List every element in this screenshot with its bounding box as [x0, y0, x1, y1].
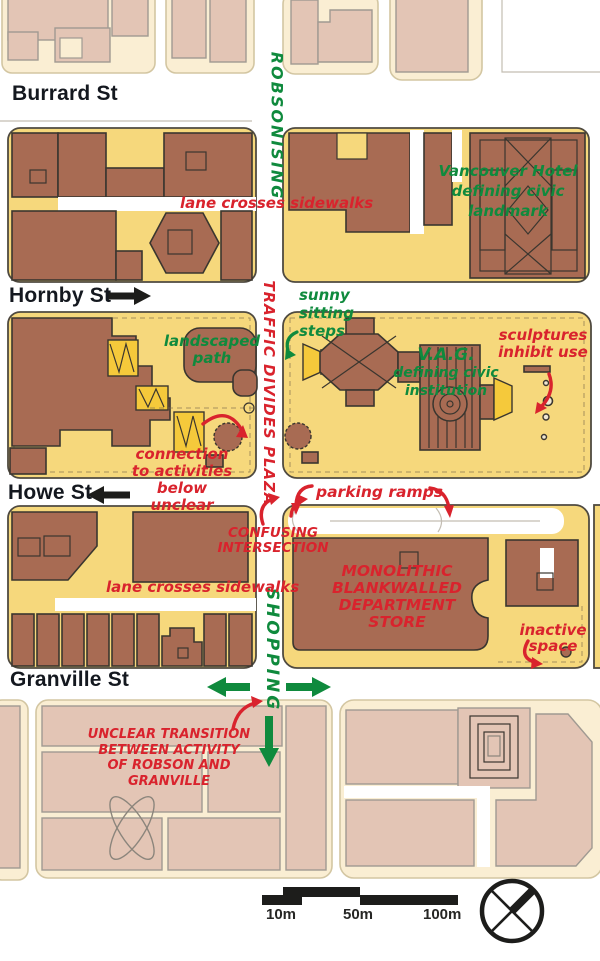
sculptures-line1: sculptures	[498, 327, 588, 344]
connection-line1: connection	[126, 446, 238, 463]
inactive-line1: inactive	[518, 622, 588, 638]
howe-st-label: Howe St	[8, 481, 92, 505]
sunny-line1: sunny	[299, 286, 354, 304]
scale-bar	[262, 887, 458, 905]
connection-annotation: connection to activities below unclear	[126, 446, 238, 514]
monolithic-store-annotation: MONOLITHIC BLANKWALLED DEPARTMENT STORE	[318, 563, 476, 631]
unclear-line1: UNCLEAR TRANSITION	[80, 727, 258, 743]
granville-st-label: Granville St	[10, 668, 129, 692]
inactive-line2: space	[518, 638, 588, 654]
sunny-steps-annotation: sunny sitting steps	[299, 286, 354, 340]
sunny-line3: steps	[299, 322, 354, 340]
landscaped-line2: path	[163, 350, 261, 367]
confusing-line2: INTERSECTION	[210, 541, 336, 556]
unclear-transition-annotation: UNCLEAR TRANSITION BETWEEN ACTIVITY OF R…	[80, 727, 258, 789]
shopfront-row	[12, 614, 252, 666]
shopping-label: SHOPPING	[262, 588, 282, 712]
burrard-st-label: Burrard St	[12, 82, 118, 106]
monolithic-line4: STORE	[318, 614, 476, 631]
landscaped-path-annotation: landscaped path	[163, 333, 261, 367]
hotel-line3: landmark	[428, 201, 588, 221]
sunny-line2: sitting	[299, 304, 354, 322]
vag-line1: V.A.G.	[388, 346, 504, 364]
monolithic-line3: DEPARTMENT	[318, 597, 476, 614]
connection-line2: to activities	[126, 463, 238, 480]
unclear-line3: OF ROBSON AND	[80, 758, 258, 774]
confusing-intersection-annotation: CONFUSING INTERSECTION	[210, 526, 336, 556]
vancouver-robson-analysis-map: Burrard St Hornby St Howe St Granville S…	[0, 0, 600, 961]
howe-direction-arrow	[87, 486, 130, 504]
sculptures-line2: inhibit use	[498, 344, 588, 361]
unclear-line2: BETWEEN ACTIVITY	[80, 743, 258, 759]
connection-line3: below unclear	[126, 480, 238, 514]
unclear-line4: GRANVILLE	[80, 774, 258, 790]
plaza-tree	[285, 423, 311, 449]
ziggurat-building	[458, 708, 530, 788]
hotel-line2: defining civic	[428, 181, 588, 201]
sculptures-annotation: sculptures inhibit use	[498, 327, 588, 361]
monolithic-line1: MONOLITHIC	[318, 563, 476, 580]
inactive-space-annotation: inactive space	[518, 622, 588, 654]
robsonising-label: ROBSONISING	[268, 52, 287, 201]
vag-annotation: V.A.G. defining civic institution	[388, 346, 504, 400]
scale-100m-label: 100m	[423, 906, 461, 923]
parking-ramps-annotation: parking ramps	[316, 483, 443, 501]
vag-line2: defining civic	[388, 364, 504, 382]
scale-50m-label: 50m	[343, 906, 373, 923]
hotel-line1: Vancouver Hotel	[428, 161, 588, 181]
landscaped-line1: landscaped	[163, 333, 261, 350]
vag-line3: institution	[388, 382, 504, 400]
hornby-st-label: Hornby St	[9, 284, 111, 308]
lane-crosses-2-label: lane crosses sidewalks	[106, 578, 299, 596]
monolithic-line2: BLANKWALLED	[318, 580, 476, 597]
traffic-divides-plaza-label: TRAFFIC DIVIDES PLAZA	[260, 280, 278, 505]
lane-crosses-1-label: lane crosses sidewalks	[180, 194, 373, 212]
hotel-annotation: Vancouver Hotel defining civic landmark	[428, 161, 588, 221]
north-compass-icon	[482, 881, 542, 941]
hornby-direction-arrow	[108, 287, 151, 305]
scale-10m-label: 10m	[266, 906, 296, 923]
confusing-line1: CONFUSING	[210, 526, 336, 541]
